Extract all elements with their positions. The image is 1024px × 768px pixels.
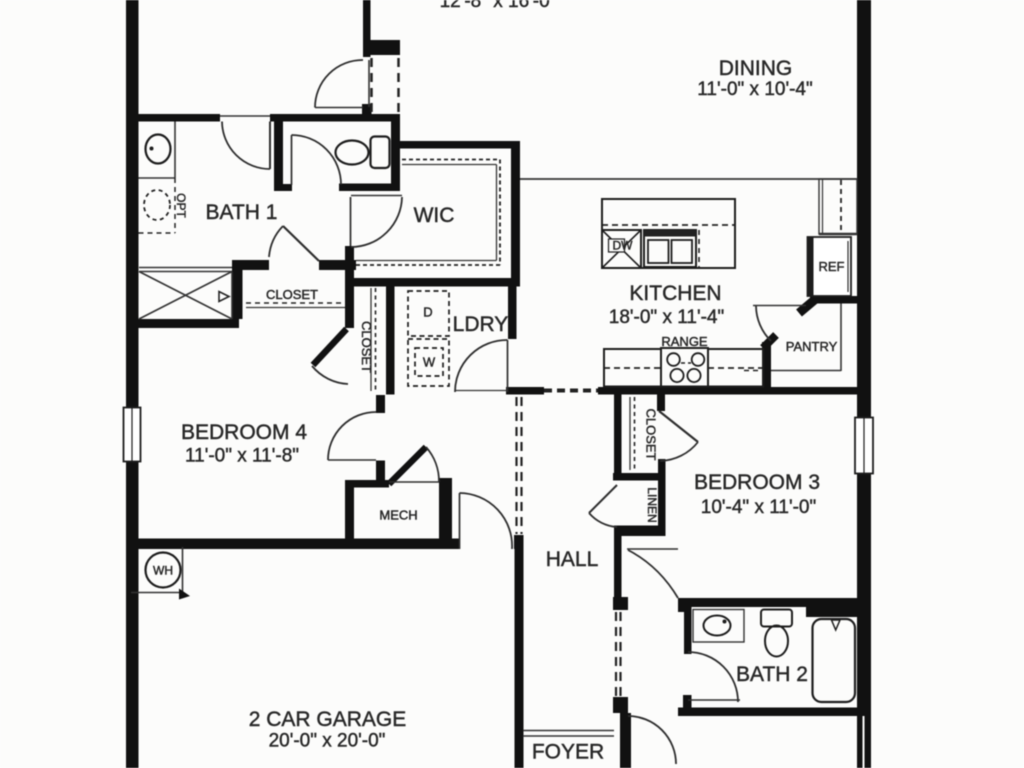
svg-text:KITCHEN: KITCHEN xyxy=(629,282,721,305)
svg-text:HALL: HALL xyxy=(546,548,599,571)
svg-text:CLOSET: CLOSET xyxy=(644,408,659,460)
svg-text:OPT: OPT xyxy=(174,193,188,218)
svg-text:BATH 2: BATH 2 xyxy=(736,663,808,686)
svg-text:DW: DW xyxy=(613,239,634,253)
svg-text:20'-0" x 20'-0": 20'-0" x 20'-0" xyxy=(269,731,386,752)
svg-text:BEDROOM 4: BEDROOM 4 xyxy=(181,421,307,444)
svg-text:CLOSET: CLOSET xyxy=(359,321,374,373)
svg-text:BATH 1: BATH 1 xyxy=(206,201,278,224)
svg-text:11'-0" x 11'-8": 11'-0" x 11'-8" xyxy=(185,446,299,467)
svg-text:LDRY: LDRY xyxy=(453,313,509,336)
svg-text:DINING: DINING xyxy=(719,57,793,80)
svg-text:PANTRY: PANTRY xyxy=(786,339,838,354)
svg-text:10'-4" x 11'-0": 10'-4" x 11'-0" xyxy=(701,497,816,518)
svg-text:2 CAR GARAGE: 2 CAR GARAGE xyxy=(249,708,407,731)
svg-text:WH: WH xyxy=(153,564,173,578)
svg-text:LINEN: LINEN xyxy=(645,487,659,522)
svg-text:12'-8" x 16'-0": 12'-8" x 16'-0" xyxy=(440,0,557,12)
svg-text:D: D xyxy=(423,305,432,320)
svg-text:MECH: MECH xyxy=(379,508,417,523)
svg-text:REF: REF xyxy=(819,259,845,274)
svg-text:BEDROOM 3: BEDROOM 3 xyxy=(694,471,820,494)
svg-text:CLOSET: CLOSET xyxy=(266,287,318,302)
svg-text:RANGE: RANGE xyxy=(661,334,708,349)
svg-text:WIC: WIC xyxy=(414,204,455,227)
svg-text:11'-0" x 10'-4": 11'-0" x 10'-4" xyxy=(697,79,812,100)
svg-text:FOYER: FOYER xyxy=(532,741,604,764)
svg-text:W: W xyxy=(423,355,436,370)
svg-text:18'-0" x 11'-4": 18'-0" x 11'-4" xyxy=(609,307,724,328)
